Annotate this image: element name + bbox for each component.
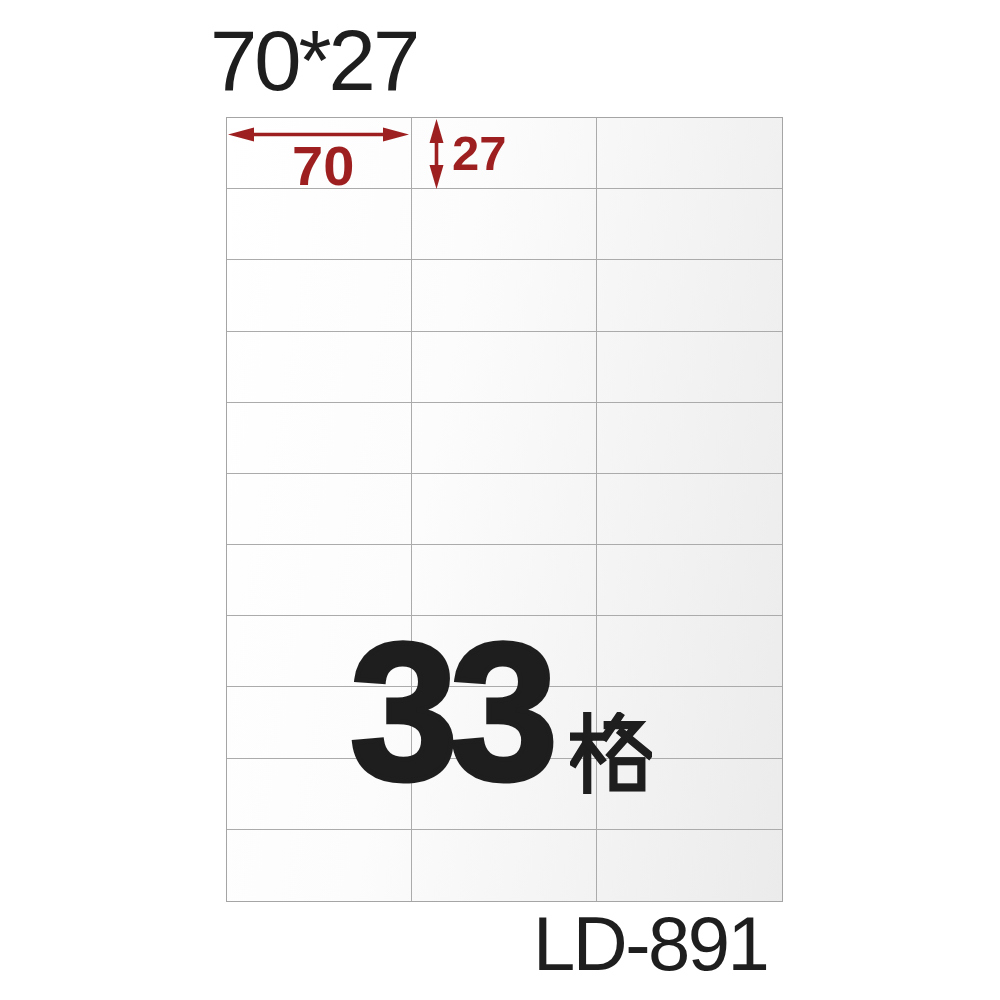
label-cell xyxy=(597,189,782,260)
label-size-title: 70*27 xyxy=(210,18,417,103)
width-dimension-label: 70 xyxy=(292,138,354,194)
height-dimension-label: 27 xyxy=(452,129,507,178)
model-code: LD-891 xyxy=(533,906,767,982)
grid-count-number: 33 xyxy=(350,615,550,809)
label-cell xyxy=(227,332,412,403)
label-cell xyxy=(597,403,782,474)
label-cell xyxy=(597,830,782,901)
label-cell xyxy=(412,260,597,331)
label-cell xyxy=(227,474,412,545)
label-cell xyxy=(412,474,597,545)
grid-count-unit-glyph xyxy=(570,712,652,794)
product-diagram-canvas: 70*27 70 27 33 LD-891 xyxy=(0,0,1000,1000)
height-dimension-arrow xyxy=(428,119,445,189)
label-cell xyxy=(597,260,782,331)
label-cell xyxy=(412,403,597,474)
label-cell xyxy=(227,260,412,331)
label-cell xyxy=(227,403,412,474)
label-cell xyxy=(597,616,782,687)
label-cell xyxy=(597,474,782,545)
label-cell xyxy=(412,332,597,403)
label-cell xyxy=(597,118,782,189)
label-cell xyxy=(227,189,412,260)
label-cell xyxy=(597,545,782,616)
label-cell xyxy=(597,332,782,403)
label-cell xyxy=(412,830,597,901)
label-cell xyxy=(227,830,412,901)
label-cell xyxy=(412,189,597,260)
